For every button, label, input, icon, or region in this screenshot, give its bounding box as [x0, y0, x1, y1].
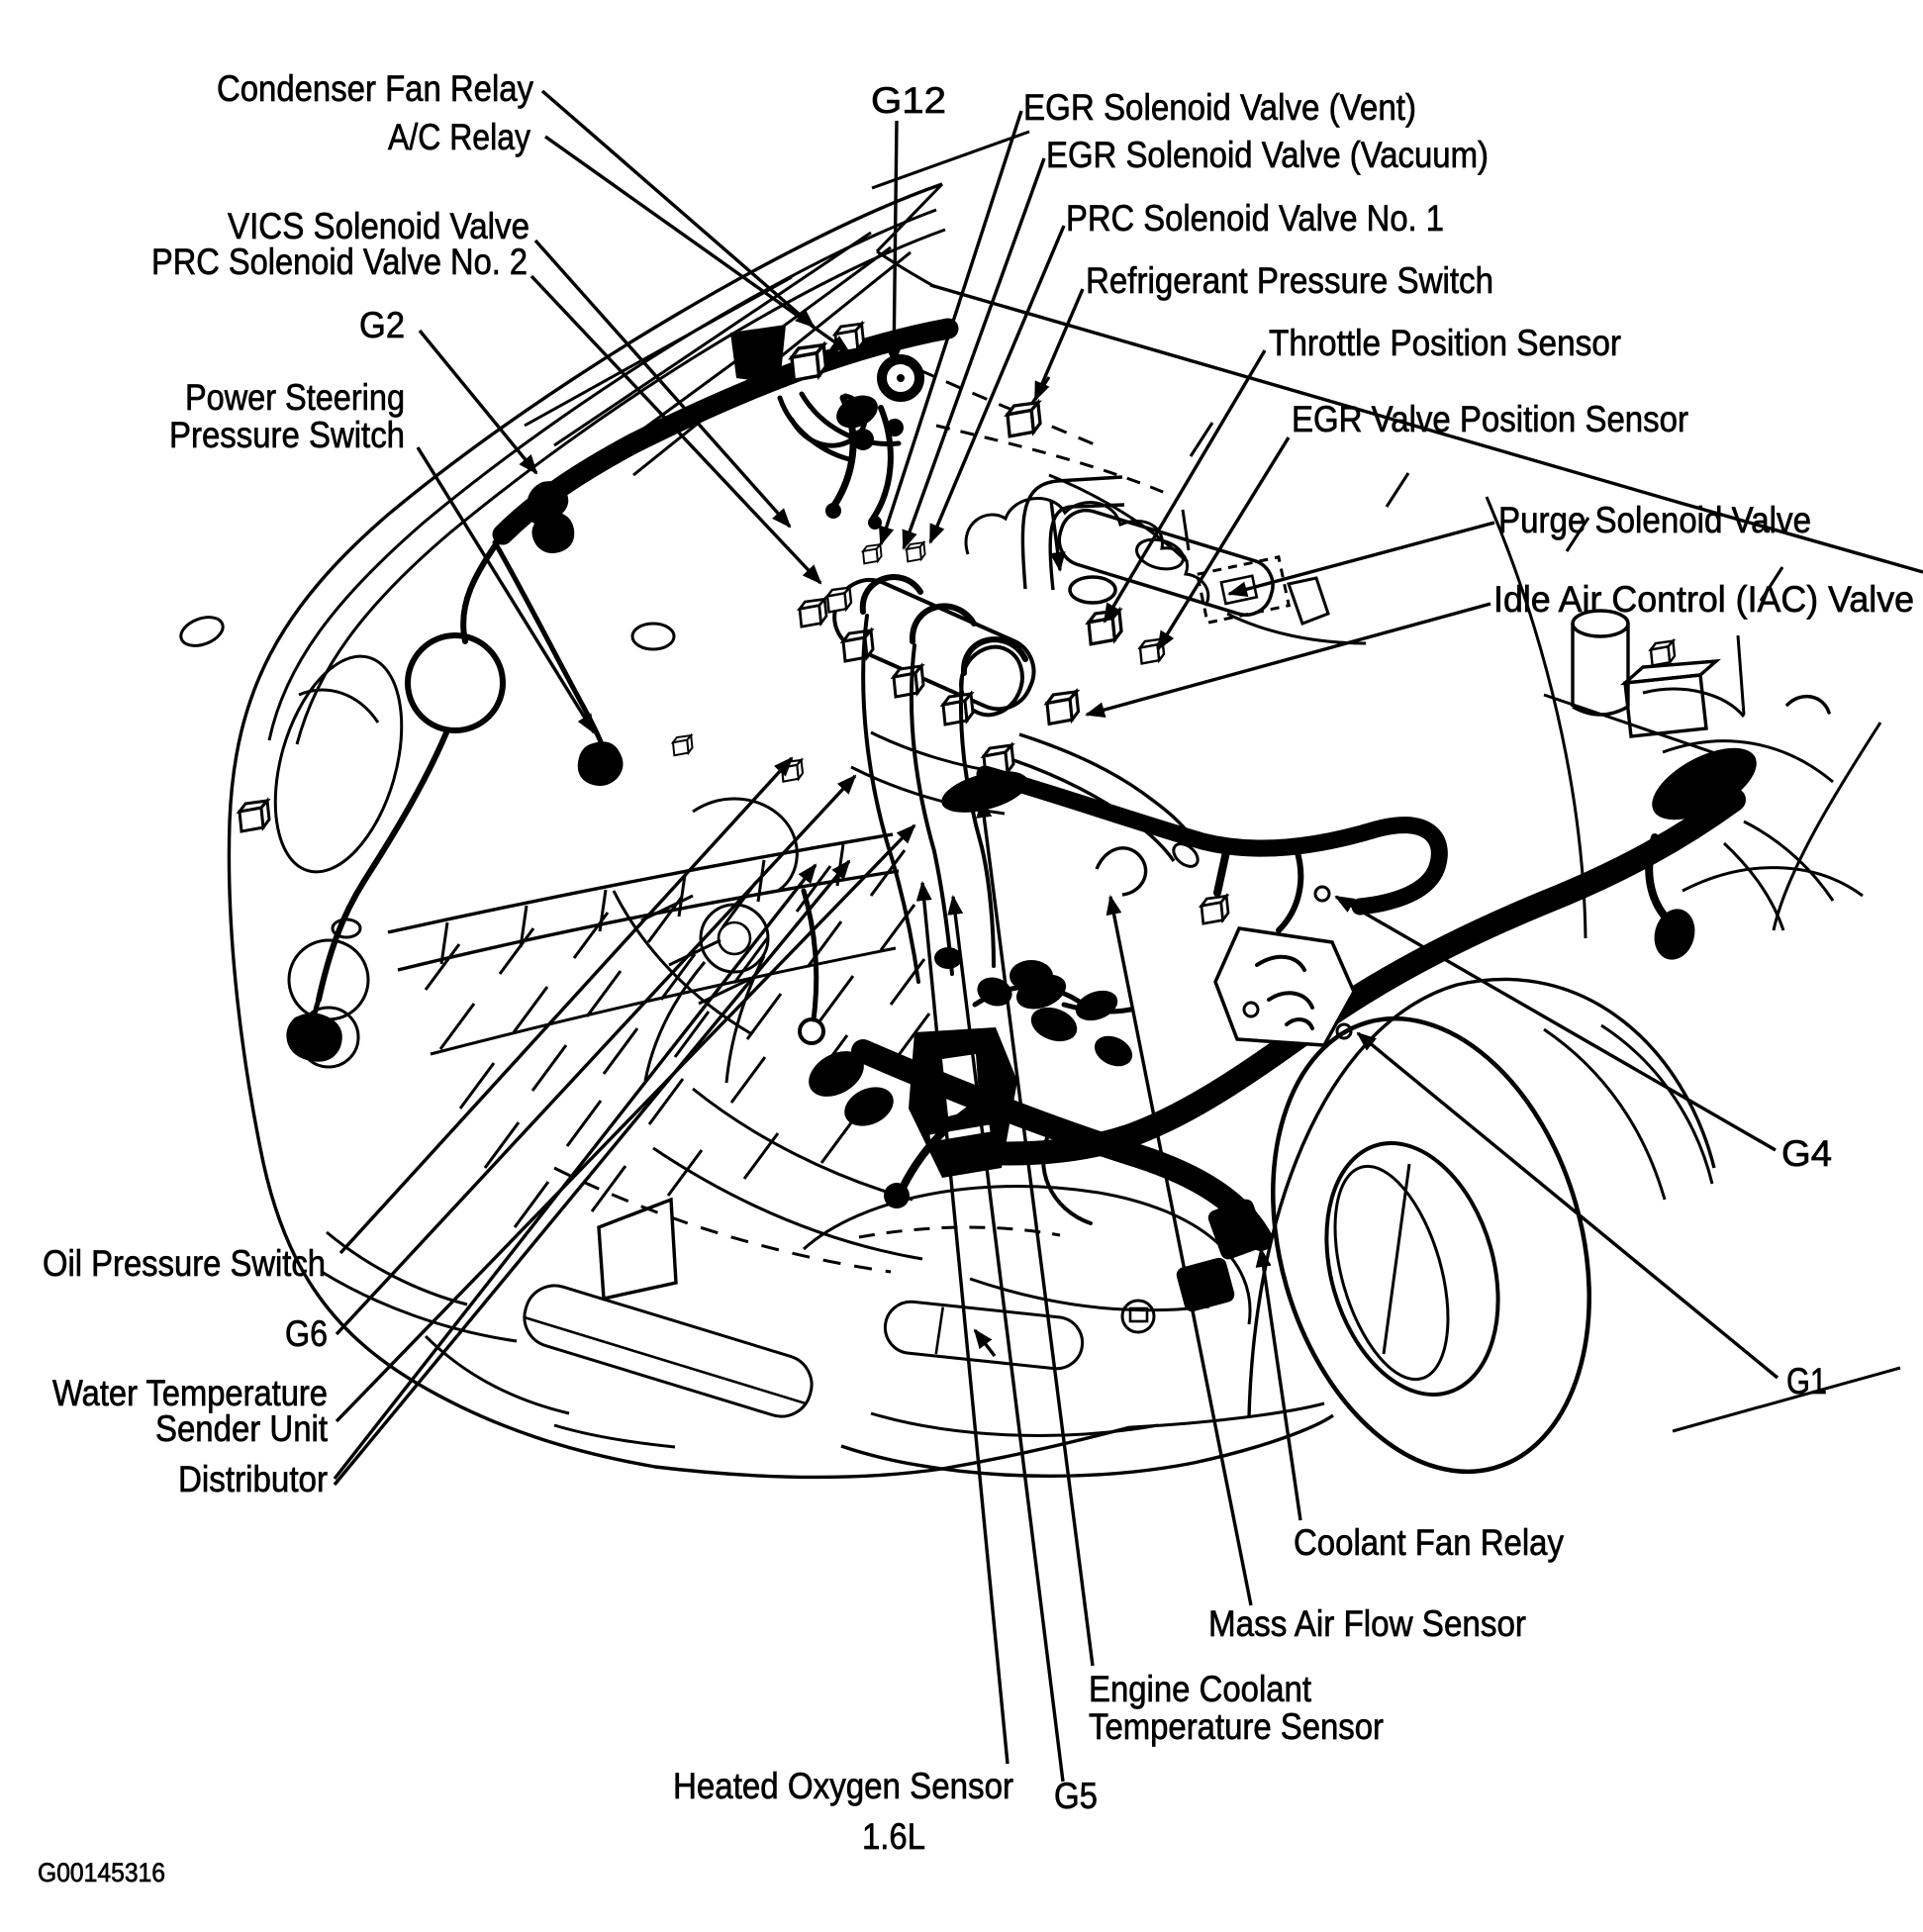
svg-text:Coolant Fan Relay: Coolant Fan Relay: [1294, 1522, 1564, 1563]
svg-text:PRC Solenoid Valve No. 1: PRC Solenoid Valve No. 1: [1066, 198, 1444, 239]
svg-text:EGR Solenoid Valve (Vacuum): EGR Solenoid Valve (Vacuum): [1046, 135, 1489, 175]
svg-text:G12: G12: [871, 80, 946, 121]
svg-text:G4: G4: [1781, 1133, 1832, 1174]
svg-text:Distributor: Distributor: [178, 1459, 328, 1499]
svg-text:G6: G6: [285, 1313, 328, 1354]
svg-text:Engine Coolant: Engine Coolant: [1089, 1669, 1312, 1709]
svg-text:Temperature Sensor: Temperature Sensor: [1089, 1706, 1384, 1747]
svg-text:Refrigerant Pressure Switch: Refrigerant Pressure Switch: [1086, 260, 1493, 301]
svg-text:G00145316: G00145316: [38, 1858, 165, 1887]
svg-text:1.6L: 1.6L: [862, 1816, 925, 1857]
svg-text:Power Steering: Power Steering: [185, 377, 405, 418]
svg-text:G1: G1: [1786, 1361, 1827, 1401]
svg-text:Purge Solenoid Valve: Purge Solenoid Valve: [1498, 500, 1811, 540]
svg-text:Condenser Fan Relay: Condenser Fan Relay: [217, 68, 533, 109]
svg-text:EGR Valve Position Sensor: EGR Valve Position Sensor: [1292, 399, 1688, 439]
svg-text:EGR Solenoid Valve (Vent): EGR Solenoid Valve (Vent): [1023, 87, 1416, 128]
svg-text:PRC Solenoid Valve No. 2: PRC Solenoid Valve No. 2: [151, 241, 528, 282]
svg-text:Heated Oxygen Sensor: Heated Oxygen Sensor: [673, 1766, 1013, 1806]
svg-text:Sender Unit: Sender Unit: [155, 1408, 329, 1449]
svg-text:Throttle Position Sensor: Throttle Position Sensor: [1269, 323, 1621, 363]
svg-text:G2: G2: [359, 305, 405, 345]
svg-text:Mass Air Flow Sensor: Mass Air Flow Sensor: [1208, 1603, 1526, 1644]
svg-text:Idle Air Control (IAC) Valve: Idle Air Control (IAC) Valve: [1493, 579, 1914, 620]
svg-text:A/C Relay: A/C Relay: [388, 117, 530, 157]
svg-text:VICS Solenoid Valve: VICS Solenoid Valve: [228, 206, 529, 246]
svg-text:Oil Pressure Switch: Oil Pressure Switch: [43, 1243, 326, 1284]
svg-text:G5: G5: [1054, 1776, 1098, 1816]
svg-text:Water Temperature: Water Temperature: [52, 1373, 328, 1413]
svg-text:Pressure Switch: Pressure Switch: [169, 415, 405, 455]
